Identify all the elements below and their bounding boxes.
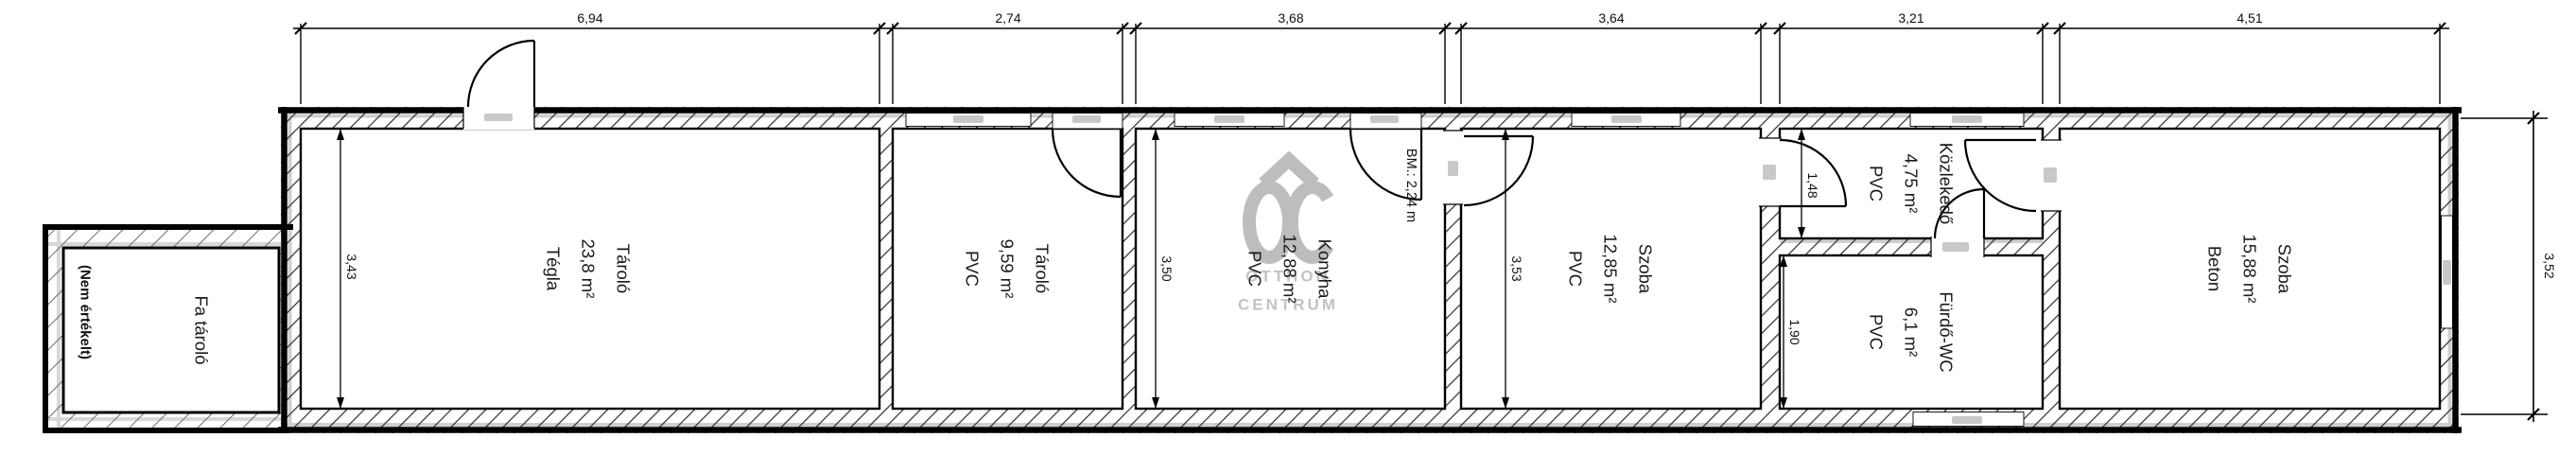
dim-szoba-1-depth: 3,53: [1509, 255, 1524, 281]
window-mark: [1611, 115, 1642, 123]
window-mark: [953, 115, 983, 123]
room-tarolo-1-label-floor: Tégla: [544, 247, 564, 291]
room-furdo-wc-label-area: 6,1 m²: [1902, 307, 1922, 357]
window-mark: [1952, 115, 1982, 123]
room-szoba-1-label-floor: PVC: [1566, 251, 1586, 287]
door-mark: [1942, 242, 1969, 252]
room-kozlekedo-label-floor: PVC: [1867, 166, 1887, 201]
room-fa-tarolo-note: (Nem értékelt): [78, 265, 94, 359]
room-fa-tarolo-label-name: Fa tároló: [192, 295, 212, 364]
room-fa-tarolo-area: [63, 248, 279, 412]
dim-kozlekedo-depth: 1,48: [1805, 172, 1820, 198]
room-kozlekedo-label-name: Közlekedő: [1937, 143, 1957, 224]
room-tarolo-2-label-name: Tároló: [1033, 244, 1053, 293]
dim-top-5: 3,21: [1898, 10, 1923, 26]
room-szoba-2-label-name: Szoba: [2275, 244, 2295, 294]
dim-furdo-depth: 1,90: [1787, 319, 1802, 344]
room-konyha-label-name: Konyha: [1315, 239, 1335, 299]
room-konyha-ceiling-note: BM.: 2,24 m: [1403, 149, 1419, 222]
room-szoba-1-label-name: Szoba: [1636, 244, 1656, 294]
door-arc-entrance: [468, 41, 534, 107]
room-konyha-label-area: 12,88 m²: [1280, 234, 1300, 303]
window-mark: [2443, 260, 2451, 285]
dim-top-3: 3,68: [1278, 10, 1303, 26]
dim-top-2: 2,74: [995, 10, 1020, 26]
room-tarolo-1-label-area: 23,8 m²: [579, 239, 599, 299]
door-mark: [1763, 165, 1776, 180]
dim-top-1: 6,94: [577, 10, 602, 26]
door-mark: [484, 114, 513, 121]
dim-right-height: 3,52: [2542, 253, 2557, 278]
door-mark: [1370, 115, 1399, 123]
room-tarolo-2-label-area: 9,59 m²: [998, 239, 1018, 299]
dim-top-4: 3,64: [1598, 10, 1624, 26]
room-kozlekedo-label-area: 4,75 m²: [1902, 154, 1922, 214]
door-mark: [1448, 161, 1458, 176]
floor-plan-page: OTTHON CENTRUM 6,94 2,74 3,68 3,64 3,21 …: [0, 0, 2576, 473]
window-mark: [1214, 115, 1244, 123]
door-mark: [2044, 167, 2057, 183]
window-mark: [1952, 416, 1982, 424]
dim-top-6: 4,51: [2237, 10, 2262, 26]
door-mark: [1072, 115, 1101, 123]
room-tarolo-2-label-floor: PVC: [963, 251, 983, 287]
room-furdo-wc-label-floor: PVC: [1867, 314, 1887, 350]
room-szoba-2-label-area: 15,88 m²: [2240, 234, 2260, 303]
room-furdo-wc-label-name: Fürdő-WC: [1937, 291, 1957, 372]
dim-konyha-depth: 3,50: [1159, 255, 1175, 281]
room-szoba-1-label-area: 12,85 m²: [1601, 234, 1621, 303]
floor-plan-drawing: OTTHON CENTRUM 6,94 2,74 3,68 3,64 3,21 …: [0, 0, 2576, 473]
room-tarolo-1-label-name: Tároló: [614, 244, 634, 293]
room-szoba-2-label-floor: Beton: [2205, 246, 2225, 291]
room-konyha-label-floor: PVC: [1245, 251, 1265, 287]
dim-tarolo-1-depth: 3,43: [344, 254, 359, 279]
